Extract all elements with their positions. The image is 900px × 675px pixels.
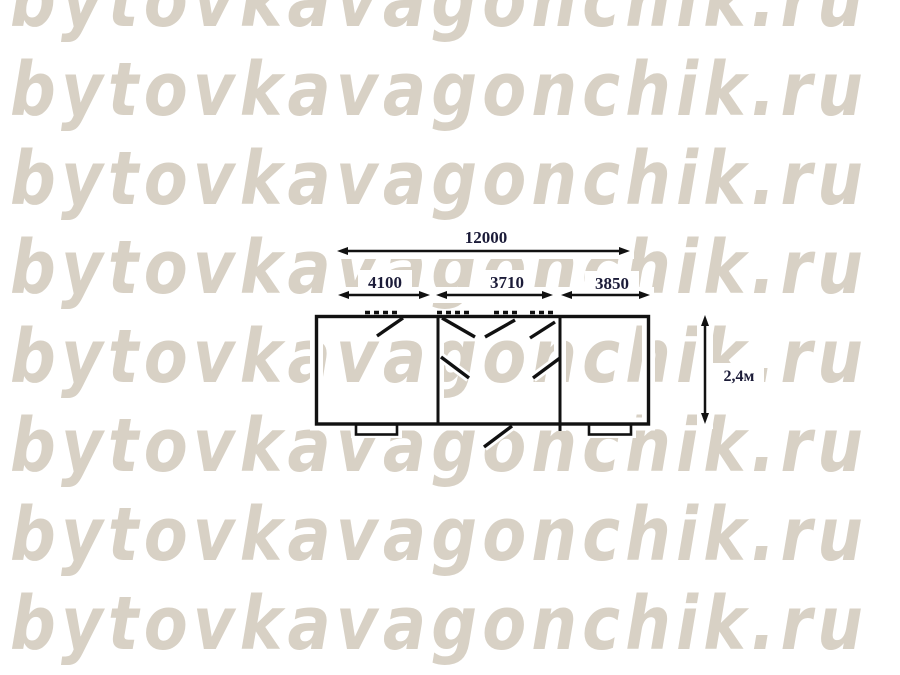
door-swing-3: [441, 357, 469, 378]
support-foot-left: [356, 425, 397, 435]
dimension-label-section2: 3710: [490, 273, 524, 292]
page: bytovkavagonchik.ru bytovkavagonchik.ru …: [0, 0, 900, 675]
building-outline: [317, 317, 649, 425]
support-foot-right: [589, 425, 631, 435]
door-swing-5: [530, 322, 555, 338]
dimension-label-section1: 4100: [368, 273, 402, 292]
dimension-label-height: 2,4м: [724, 368, 755, 385]
dimension-label-section3: 3850: [595, 274, 629, 293]
dimension-label-total: 12000: [465, 228, 508, 247]
technical-drawing: 12000 4100 3710 3850 2,4м: [0, 0, 900, 675]
